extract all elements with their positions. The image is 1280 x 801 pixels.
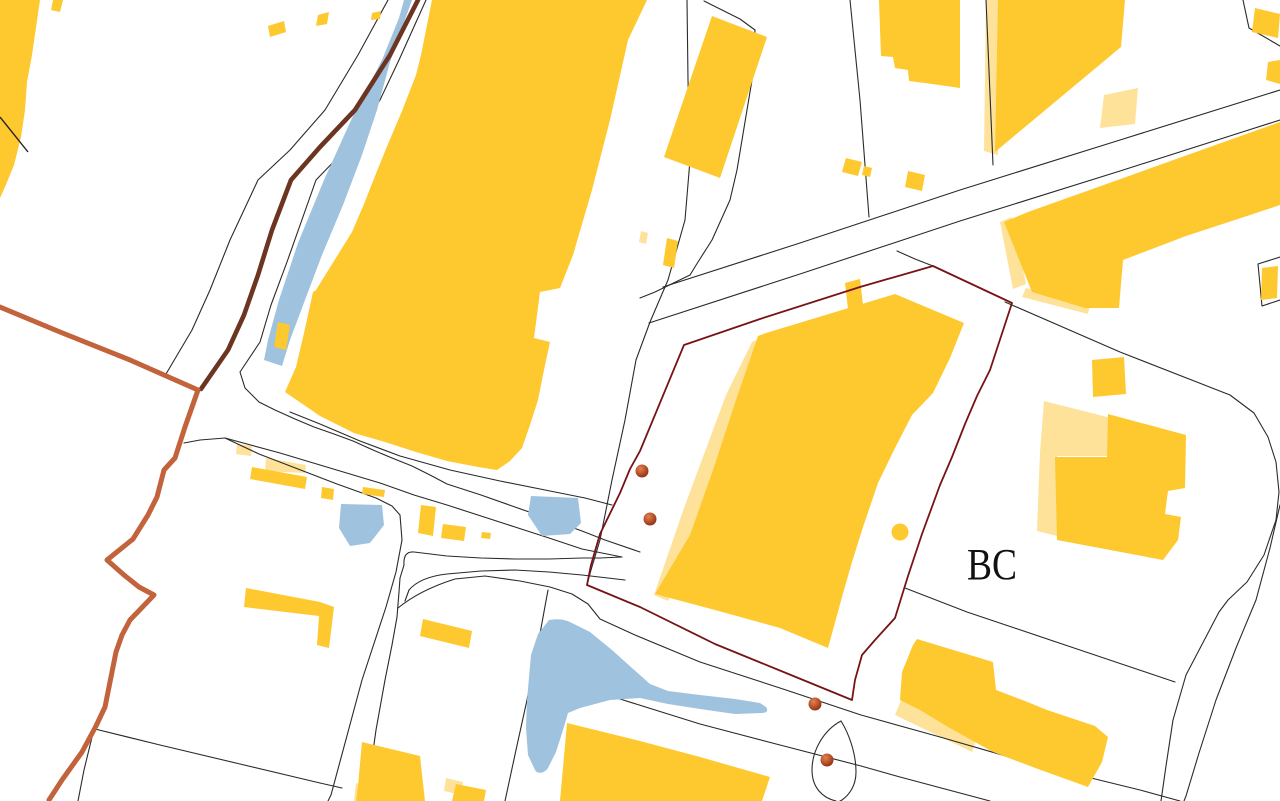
- svg-text:BC: BC: [967, 540, 1017, 589]
